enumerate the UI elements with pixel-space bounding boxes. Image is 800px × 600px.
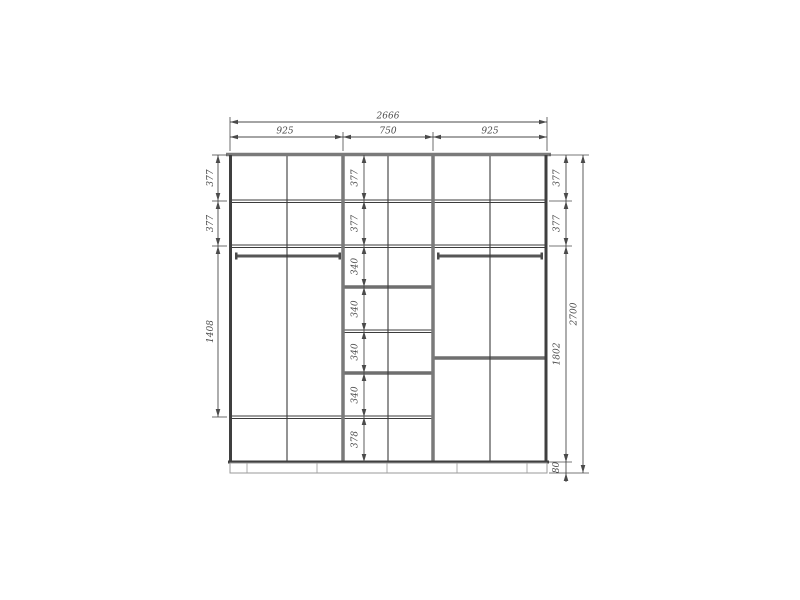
dim-label-center-3: 340 <box>351 300 361 317</box>
dim-label-center-6: 378 <box>351 431 361 448</box>
dim-label-right-3: 80 <box>552 462 562 474</box>
dim-section-widths: 925 750 925 <box>230 127 547 152</box>
dim-label-center-5: 340 <box>351 386 361 403</box>
dim-label-total-width: 2666 <box>376 112 400 122</box>
dim-label-top-section-1: 750 <box>379 127 396 137</box>
dimension-annotations: 2666 925 750 925 377 377 1408 <box>206 112 589 483</box>
dim-label-right-1: 377 <box>553 215 563 232</box>
wardrobe-cabinet <box>226 155 551 474</box>
technical-drawing-page: 2666 925 750 925 377 377 1408 <box>0 0 800 600</box>
dim-label-center-1: 377 <box>351 215 361 232</box>
dim-label-top-section-0: 925 <box>276 127 293 137</box>
dim-label-right-0: 377 <box>553 169 563 186</box>
dim-label-left-0: 377 <box>206 169 216 186</box>
hanging-rod-left <box>235 253 341 260</box>
dim-label-right-2: 1802 <box>553 342 563 365</box>
dim-label-left-2: 1408 <box>206 320 216 343</box>
dim-label-total-height: 2700 <box>570 302 580 326</box>
dim-label-center-4: 340 <box>351 343 361 360</box>
dim-total-height: 2700 <box>570 155 584 473</box>
technical-drawing-canvas: 2666 925 750 925 377 377 1408 <box>0 0 800 600</box>
dim-label-center-2: 340 <box>351 258 361 275</box>
dim-label-top-section-2: 925 <box>481 127 498 137</box>
shelf-bottom-row <box>231 416 432 419</box>
dim-label-center-0: 377 <box>351 169 361 186</box>
dim-left-chain: 377 377 1408 <box>206 155 227 417</box>
plinth <box>230 463 547 473</box>
dim-label-left-1: 377 <box>206 215 216 232</box>
